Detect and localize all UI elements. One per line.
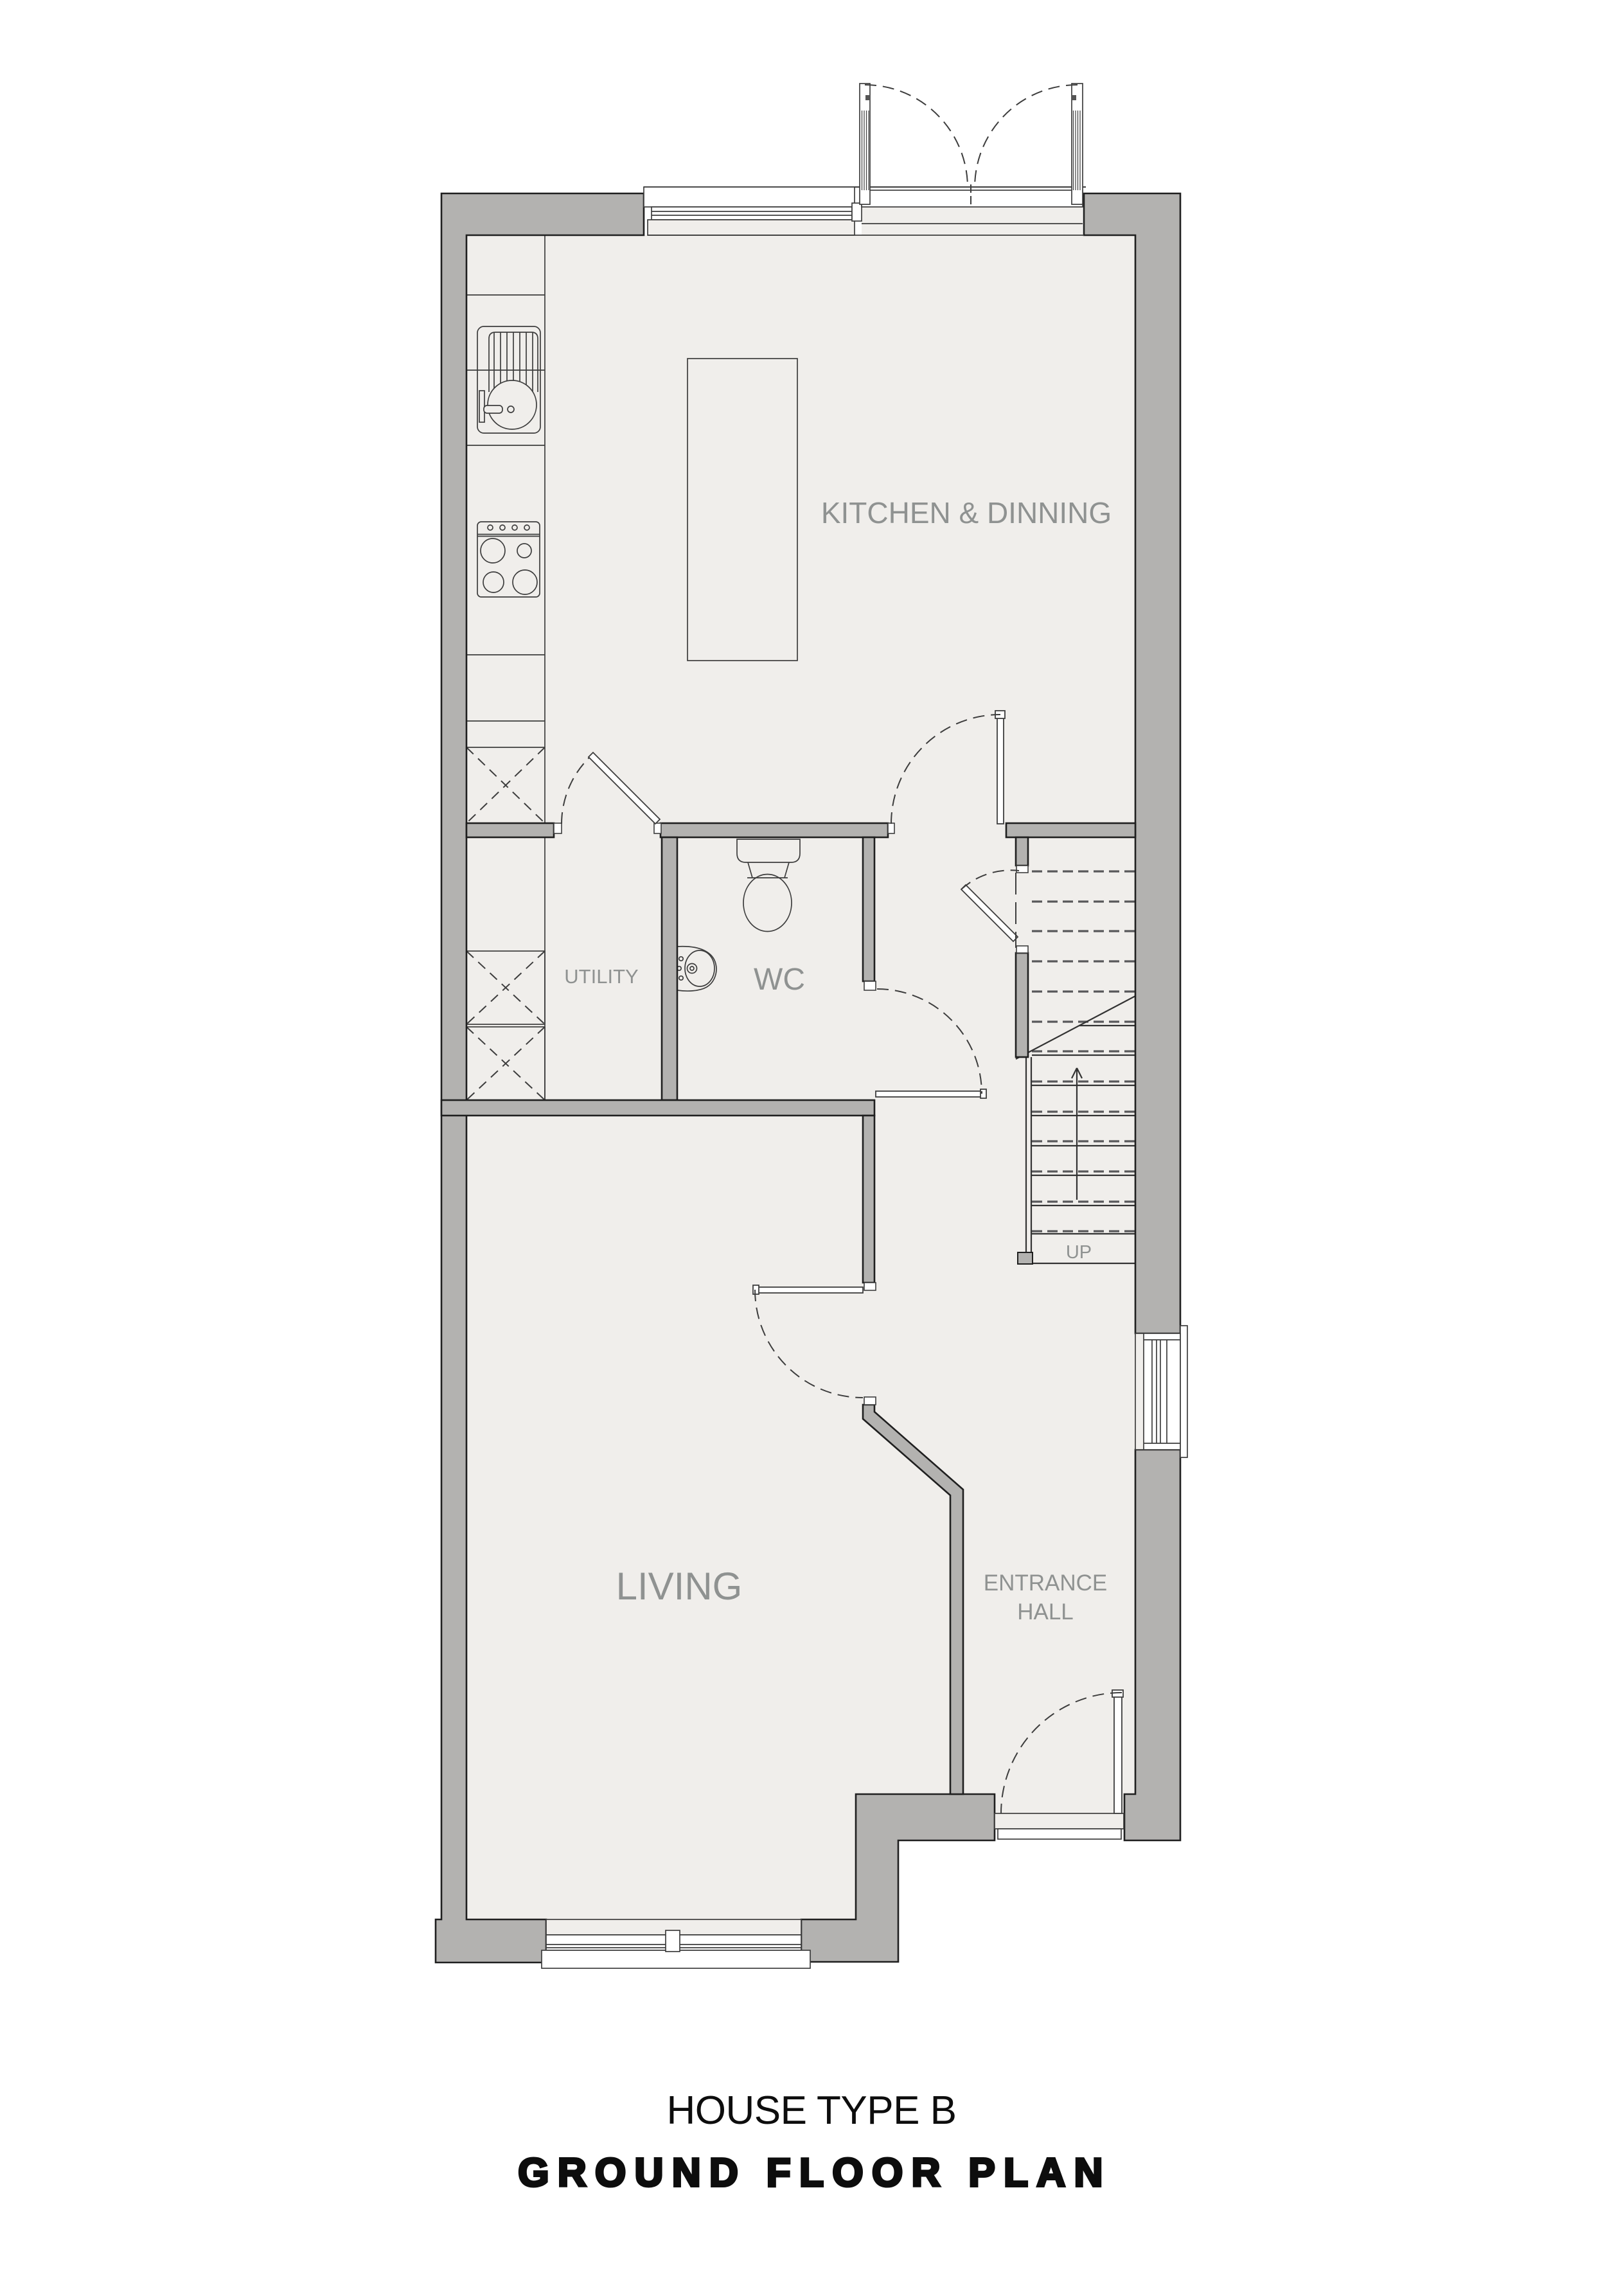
svg-text:LIVING: LIVING: [616, 1565, 743, 1608]
svg-text:UTILITY: UTILITY: [564, 965, 638, 988]
svg-text:WC: WC: [754, 963, 805, 997]
svg-text:GROUND FLOOR PLAN: GROUND FLOOR PLAN: [518, 2151, 1112, 2195]
svg-text:UP: UP: [1066, 1242, 1092, 1263]
svg-text:HALL: HALL: [1017, 1599, 1074, 1624]
svg-text:ENTRANCE: ENTRANCE: [984, 1571, 1108, 1596]
svg-text:KITCHEN & DINNING: KITCHEN & DINNING: [821, 496, 1112, 530]
svg-text:HOUSE TYPE B: HOUSE TYPE B: [666, 2088, 956, 2133]
